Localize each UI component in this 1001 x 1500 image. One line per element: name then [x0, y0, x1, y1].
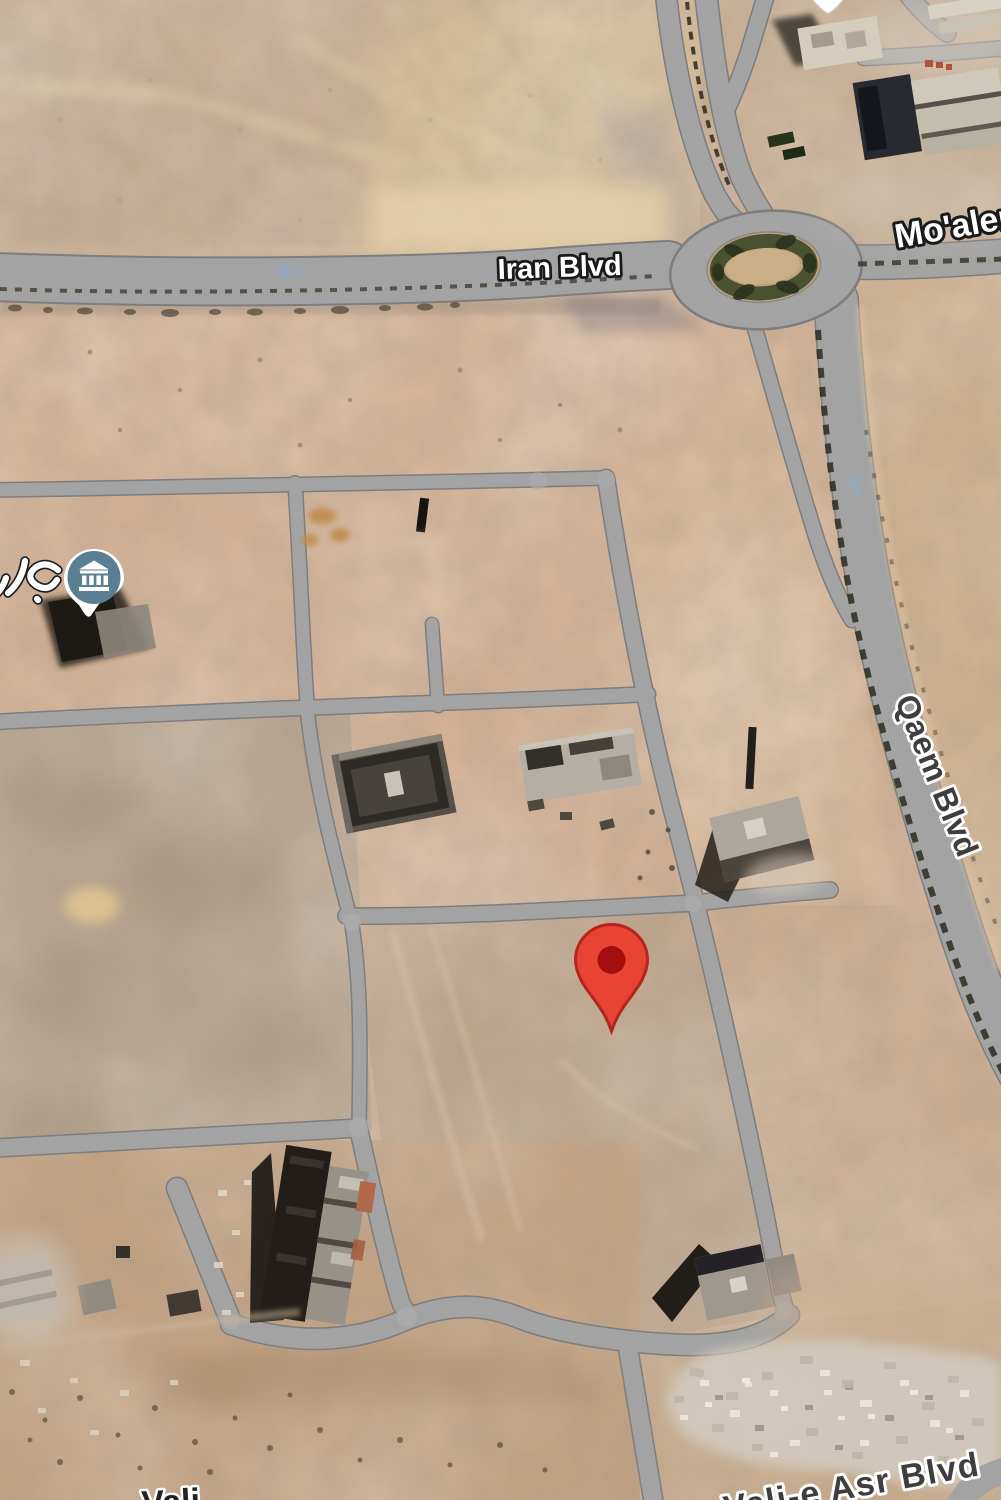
svg-text:Iran Blvd: Iran Blvd: [497, 250, 622, 286]
svg-text:Vali: Vali: [141, 1482, 202, 1500]
